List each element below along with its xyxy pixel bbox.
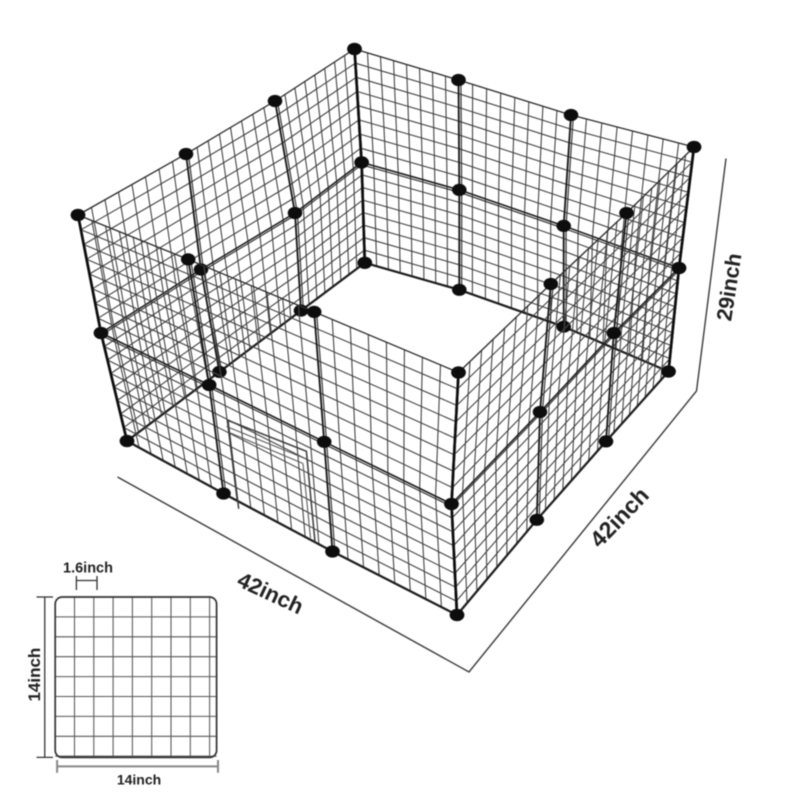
- svg-text:14inch: 14inch: [117, 772, 161, 788]
- svg-text:1.6inch: 1.6inch: [63, 561, 113, 577]
- svg-text:14inch: 14inch: [25, 648, 44, 702]
